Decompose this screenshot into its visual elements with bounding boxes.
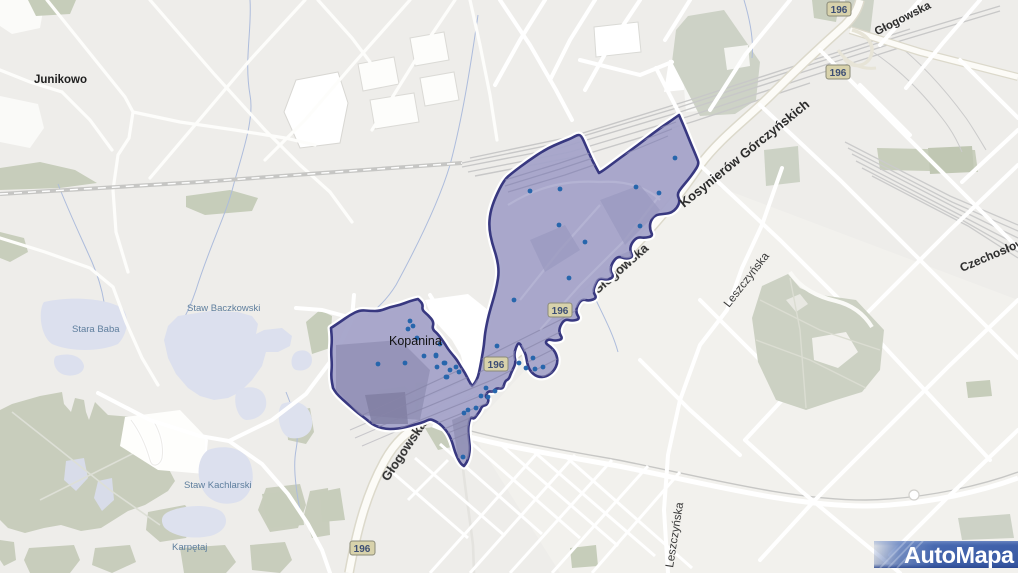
svg-text:Kopanina: Kopanina	[389, 334, 442, 348]
svg-text:AutoMapa: AutoMapa	[904, 542, 1015, 568]
svg-text:196: 196	[830, 68, 847, 79]
svg-text:Staw Baczkowski: Staw Baczkowski	[187, 303, 260, 314]
svg-text:196: 196	[488, 360, 505, 371]
svg-text:Stara Baba: Stara Baba	[72, 324, 120, 335]
svg-text:Junikowo: Junikowo	[34, 74, 87, 86]
svg-text:196: 196	[552, 306, 569, 317]
svg-text:Karpętaj: Karpętaj	[172, 542, 207, 553]
svg-text:196: 196	[354, 544, 371, 555]
svg-text:Staw Kachlarski: Staw Kachlarski	[184, 480, 252, 491]
svg-text:196: 196	[831, 5, 848, 16]
